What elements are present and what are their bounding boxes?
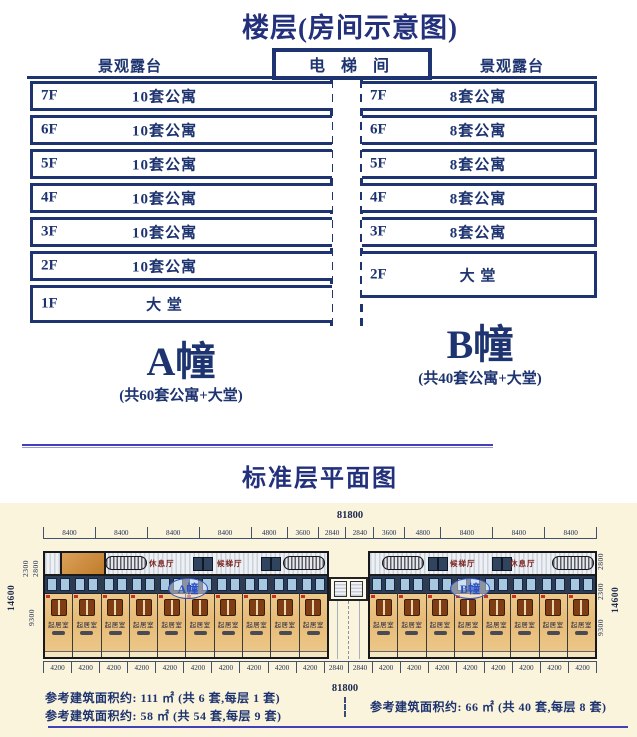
bed-icon xyxy=(220,599,236,616)
dimension-segment: 3600 xyxy=(287,527,318,538)
dimension-segment: 8400 xyxy=(95,527,147,538)
bed-icon xyxy=(489,599,505,616)
bathroom-block xyxy=(511,576,538,594)
balcony-strip xyxy=(398,651,425,657)
sofa-icon xyxy=(222,631,235,635)
sofa-icon xyxy=(377,631,390,635)
bed-icon xyxy=(305,599,321,616)
elevator-icon xyxy=(203,557,213,571)
total-dimension-top: 81800 xyxy=(295,510,405,521)
apartment-unit: 起居室 xyxy=(72,576,100,657)
apartment-unit: 起居室 xyxy=(397,576,425,657)
bathroom-block xyxy=(568,576,595,594)
dimension-segment: 4200 xyxy=(127,662,155,673)
bottom-dimension-row: 4200420042004200420042004200420042004200… xyxy=(43,661,597,673)
dimension-segment: 4200 xyxy=(268,662,296,673)
bath-fixture-icon xyxy=(583,578,593,591)
floor-row-7f: 7F10套公寓 xyxy=(30,81,332,111)
sofa-icon xyxy=(137,631,150,635)
dimension-segment: 2840 xyxy=(318,527,346,538)
balcony-strip xyxy=(483,651,510,657)
sofa-icon xyxy=(194,631,207,635)
bath-fixture-icon xyxy=(145,578,155,591)
living-room-label: 起居室 xyxy=(105,619,126,629)
floor-content: 10套公寓 xyxy=(15,188,314,209)
apartment-unit: 起居室 xyxy=(45,576,72,657)
floor-content: 8套公寓 xyxy=(362,188,594,209)
dimension-segment: 3600 xyxy=(373,527,404,538)
bathroom-block xyxy=(243,576,270,594)
bath-fixture-icon xyxy=(302,578,312,591)
dimension-segment: 4200 xyxy=(512,662,540,673)
balcony-strip xyxy=(243,651,270,657)
bathroom-block xyxy=(300,576,327,594)
balcony-strip xyxy=(130,651,157,657)
dimension-segment: 8400 xyxy=(544,527,597,538)
dimension-segment: 2840 xyxy=(348,662,372,673)
bed-icon xyxy=(404,599,420,616)
balcony-strip xyxy=(370,651,397,657)
terrace-label-left: 景观露台 xyxy=(70,55,190,76)
bath-fixture-icon xyxy=(217,578,227,591)
bath-fixture-icon xyxy=(75,578,85,591)
dimension-segment: 4200 xyxy=(183,662,211,673)
plan-title: 标准层平面图 xyxy=(20,458,620,493)
floor-content: 8套公寓 xyxy=(362,154,594,175)
balcony-strip xyxy=(102,651,129,657)
bath-fixture-icon xyxy=(132,578,142,591)
elevator-hall-label: 候梯厅 xyxy=(450,558,476,569)
stairs-icon xyxy=(382,556,424,570)
building-b-subtitle: (共40套公寓+大堂) xyxy=(360,367,600,388)
floor-content: 10套公寓 xyxy=(15,222,314,243)
apartment-unit: 起居室 xyxy=(299,576,327,657)
bath-fixture-icon xyxy=(287,578,297,591)
side-dimension-label: 2300 xyxy=(21,549,30,589)
elevator-shaft-box: 电 梯 间 xyxy=(272,48,432,80)
sofa-icon xyxy=(434,631,447,635)
apartment-unit: 起居室 xyxy=(270,576,298,657)
dimension-segment: 8400 xyxy=(199,527,251,538)
living-room-label: 起居室 xyxy=(514,619,535,629)
floor-row-2f: 2F大 堂 xyxy=(362,251,597,298)
terrace-label-right: 景观露台 xyxy=(452,55,572,76)
area-note-111: 参考建筑面积约: 111 ㎡ (共 6 套,每层 1 套) xyxy=(45,689,280,706)
dimension-segment: 2840 xyxy=(345,527,373,538)
living-room-label: 起居室 xyxy=(486,619,507,629)
balcony-strip xyxy=(215,651,242,657)
floor-row-6f: 6F8套公寓 xyxy=(362,115,597,145)
page-title: 楼层(房间示意图) xyxy=(60,6,637,45)
elevator-icon xyxy=(492,557,502,571)
floor-content: 8套公寓 xyxy=(362,222,594,243)
bed-icon xyxy=(432,599,448,616)
bed-icon xyxy=(192,599,208,616)
stairs-icon xyxy=(283,556,325,570)
floor-content: 10套公寓 xyxy=(15,154,314,175)
bed-icon xyxy=(376,599,392,616)
apartment-unit: 起居室 xyxy=(370,576,397,657)
bed-icon xyxy=(51,599,67,616)
bath-fixture-icon xyxy=(555,578,565,591)
balcony-strip xyxy=(73,651,100,657)
floor-content: 10套公寓 xyxy=(15,120,314,141)
bath-fixture-icon xyxy=(104,578,114,591)
side-dimension-label: 9300 xyxy=(596,605,605,651)
balcony-strip xyxy=(427,651,454,657)
area-note-66: 参考建筑面积约: 66 ㎡ (共 40 套,每层 8 套) xyxy=(370,698,607,715)
bath-fixture-icon xyxy=(429,578,439,591)
dimension-segment: 4200 xyxy=(155,662,183,673)
balcony-strip xyxy=(511,651,538,657)
floor-row-4f: 4F8套公寓 xyxy=(362,183,597,213)
sofa-icon xyxy=(52,631,65,635)
living-room-label: 起居室 xyxy=(303,619,324,629)
bed-icon xyxy=(136,599,152,616)
dimension-segment: 4200 xyxy=(456,662,484,673)
apartment-unit: 起居室 xyxy=(101,576,129,657)
center-axis-line xyxy=(337,601,338,659)
floor-content: 10套公寓 xyxy=(15,86,314,107)
side-dimension-label: 14600 xyxy=(7,567,17,629)
bath-fixture-icon xyxy=(570,578,580,591)
floor-row-6f: 6F10套公寓 xyxy=(30,115,332,145)
floor-content: 8套公寓 xyxy=(362,120,594,141)
floor-row-5f: 5F8套公寓 xyxy=(362,149,597,179)
living-room-label: 起居室 xyxy=(458,619,479,629)
sofa-icon xyxy=(518,631,531,635)
sofa-icon xyxy=(279,631,292,635)
floor-content: 大 堂 xyxy=(15,294,314,315)
apartment-unit: 起居室 xyxy=(129,576,157,657)
bridge-cell xyxy=(334,581,347,597)
bathroom-block xyxy=(398,576,425,594)
bottom-divider xyxy=(48,726,628,728)
living-room-label: 起居室 xyxy=(190,619,211,629)
dimension-segment: 4200 xyxy=(568,662,597,673)
building-a-name: A幢 xyxy=(81,342,281,382)
dimension-segment: 4200 xyxy=(71,662,99,673)
sofa-icon xyxy=(109,631,122,635)
dimension-segment: 4200 xyxy=(540,662,568,673)
dimension-segment: 4800 xyxy=(251,527,287,538)
side-dimension-label: 2800 xyxy=(596,548,605,576)
elevator-icon xyxy=(271,557,281,571)
side-dimension-label: 14600 xyxy=(611,569,621,631)
living-room-label: 起居室 xyxy=(571,619,592,629)
sofa-icon xyxy=(490,631,503,635)
floor-content: 10套公寓 xyxy=(15,256,314,277)
floor-row-7f: 7F8套公寓 xyxy=(362,81,597,111)
apartment-unit: 起居室 xyxy=(214,576,242,657)
wing-b-corridor: 候梯厅休息厅 xyxy=(370,553,595,576)
bath-fixture-icon xyxy=(513,578,523,591)
bath-fixture-icon xyxy=(258,578,268,591)
bathroom-block xyxy=(45,576,72,594)
floor-row-3f: 3F10套公寓 xyxy=(30,217,332,247)
wing-a-corridor: 休息厅候梯厅 xyxy=(45,553,327,576)
floor-row-3f: 3F8套公寓 xyxy=(362,217,597,247)
standard-floor-plan: 81800 8400840084008400480036002840284036… xyxy=(0,503,637,737)
rest-hall-label: 休息厅 xyxy=(149,558,175,569)
bath-fixture-icon xyxy=(60,578,70,591)
connecting-bridge xyxy=(329,577,368,601)
bath-fixture-icon xyxy=(315,578,325,591)
side-dimension-label: 2300 xyxy=(596,578,605,606)
sofa-icon xyxy=(165,631,178,635)
dimension-segment: 8400 xyxy=(147,527,199,538)
floor-schematic: 楼层(房间示意图) 景观露台 景观露台 电 梯 间 7F10套公寓6F10套公寓… xyxy=(0,0,637,445)
bed-icon xyxy=(277,599,293,616)
sofa-icon xyxy=(547,631,560,635)
dimension-segment: 4200 xyxy=(43,662,71,673)
side-dimension-label: 9300 xyxy=(27,595,36,641)
elevator-icon xyxy=(428,557,438,571)
table-top-border-right xyxy=(432,76,597,79)
floor-row-1f: 1F大 堂 xyxy=(30,285,332,323)
side-dimension-label: 2800 xyxy=(31,549,40,589)
bathroom-block xyxy=(130,576,157,594)
sofa-icon xyxy=(462,631,475,635)
total-dimension-bottom: 81800 xyxy=(290,683,400,694)
floor-row-2f: 2F10套公寓 xyxy=(30,251,332,281)
table-top-border-left xyxy=(27,76,272,79)
bathroom-block xyxy=(73,576,100,594)
floor-content: 8套公寓 xyxy=(362,86,594,107)
living-room-label: 起居室 xyxy=(218,619,239,629)
living-room-label: 起居室 xyxy=(133,619,154,629)
sofa-icon xyxy=(307,631,320,635)
apartment-unit: 起居室 xyxy=(510,576,538,657)
balcony-strip xyxy=(158,651,185,657)
top-dimension-row: 8400840084008400480036002840284036004800… xyxy=(43,527,597,539)
bath-fixture-icon xyxy=(230,578,240,591)
bed-icon xyxy=(517,599,533,616)
bath-fixture-icon xyxy=(117,578,127,591)
dimension-segment: 4200 xyxy=(428,662,456,673)
bathroom-block xyxy=(102,576,129,594)
wing-a-badge: A幢 xyxy=(168,578,208,599)
dimension-segment: 4200 xyxy=(239,662,267,673)
living-room-label: 起居室 xyxy=(430,619,451,629)
bath-fixture-icon xyxy=(498,578,508,591)
living-room-label: 起居室 xyxy=(76,619,97,629)
wing-a: 休息厅候梯厅 起居室起居室起居室起居室起居室起居室起居室起居室起居室起居室 xyxy=(43,551,329,659)
living-room-label: 起居室 xyxy=(543,619,564,629)
sofa-icon xyxy=(250,631,263,635)
bed-icon xyxy=(107,599,123,616)
dimension-segment: 8400 xyxy=(492,527,544,538)
bath-fixture-icon xyxy=(413,578,423,591)
dimension-segment: 4200 xyxy=(400,662,428,673)
stairs-icon xyxy=(105,556,147,570)
center-dashed-mark xyxy=(344,697,346,717)
wing-b: 候梯厅休息厅 起居室起居室起居室起居室起居室起居室起居室起居室 xyxy=(368,551,597,659)
balcony-strip xyxy=(271,651,298,657)
apartment-unit: 起居室 xyxy=(539,576,567,657)
bath-fixture-icon xyxy=(47,578,57,591)
bridge-cell xyxy=(350,581,363,597)
area-note-58: 参考建筑面积约: 58 ㎡ (共 54 套,每层 9 套) xyxy=(45,707,282,724)
dimension-segment: 4800 xyxy=(404,527,440,538)
living-room-label: 起居室 xyxy=(48,619,69,629)
elevator-icon xyxy=(261,557,271,571)
center-axis-dashed xyxy=(348,601,349,659)
balcony-strip xyxy=(540,651,567,657)
bath-fixture-icon xyxy=(542,578,552,591)
bath-fixture-icon xyxy=(385,578,395,591)
bath-fixture-icon xyxy=(245,578,255,591)
section-divider xyxy=(22,444,493,448)
page: 楼层(房间示意图) 景观露台 景观露台 电 梯 间 7F10套公寓6F10套公寓… xyxy=(0,0,637,737)
center-axis-line xyxy=(359,601,360,659)
dimension-segment: 8400 xyxy=(43,527,95,538)
building-a-subtitle: (共60套公寓+大堂) xyxy=(61,384,301,405)
balcony-strip xyxy=(568,651,595,657)
floor-row-4f: 4F10套公寓 xyxy=(30,183,332,213)
bed-icon xyxy=(164,599,180,616)
balcony-strip xyxy=(300,651,327,657)
bathroom-block xyxy=(271,576,298,594)
sofa-icon xyxy=(575,631,588,635)
bath-fixture-icon xyxy=(400,578,410,591)
bed-icon xyxy=(79,599,95,616)
bath-fixture-icon xyxy=(274,578,284,591)
bathroom-block xyxy=(215,576,242,594)
bathroom-block xyxy=(540,576,567,594)
floor-content: 大 堂 xyxy=(362,264,594,285)
stairs-icon xyxy=(552,556,594,570)
living-room-label: 起居室 xyxy=(161,619,182,629)
balcony-strip xyxy=(45,651,72,657)
living-room-label: 起居室 xyxy=(246,619,267,629)
living-room-label: 起居室 xyxy=(373,619,394,629)
apartment-unit: 起居室 xyxy=(567,576,595,657)
bed-icon xyxy=(460,599,476,616)
dimension-segment: 4200 xyxy=(296,662,324,673)
dimension-segment: 4200 xyxy=(99,662,127,673)
bed-icon xyxy=(545,599,561,616)
dimension-segment: 4200 xyxy=(211,662,239,673)
bath-fixture-icon xyxy=(526,578,536,591)
sofa-icon xyxy=(80,631,93,635)
living-room-label: 起居室 xyxy=(401,619,422,629)
sofa-icon xyxy=(405,631,418,635)
elevator-icon xyxy=(438,557,448,571)
apartment-unit: 起居室 xyxy=(242,576,270,657)
dimension-segment: 8400 xyxy=(440,527,492,538)
wing-b-badge: B幢 xyxy=(450,578,490,599)
balcony-strip xyxy=(186,651,213,657)
bath-fixture-icon xyxy=(372,578,382,591)
bath-fixture-icon xyxy=(88,578,98,591)
living-room-label: 起居室 xyxy=(275,619,296,629)
dimension-segment: 4200 xyxy=(484,662,512,673)
dimension-segment: 2840 xyxy=(324,662,348,673)
rest-hall-label: 休息厅 xyxy=(510,558,536,569)
building-b-name: B幢 xyxy=(380,325,580,365)
balcony-strip xyxy=(455,651,482,657)
unit-111-room xyxy=(60,553,106,574)
elevator-icon xyxy=(193,557,203,571)
floor-row-5f: 5F10套公寓 xyxy=(30,149,332,179)
dimension-segment: 4200 xyxy=(372,662,400,673)
elevator-hall-label: 候梯厅 xyxy=(217,558,243,569)
bed-icon xyxy=(249,599,265,616)
bathroom-block xyxy=(370,576,397,594)
bed-icon xyxy=(573,599,589,616)
